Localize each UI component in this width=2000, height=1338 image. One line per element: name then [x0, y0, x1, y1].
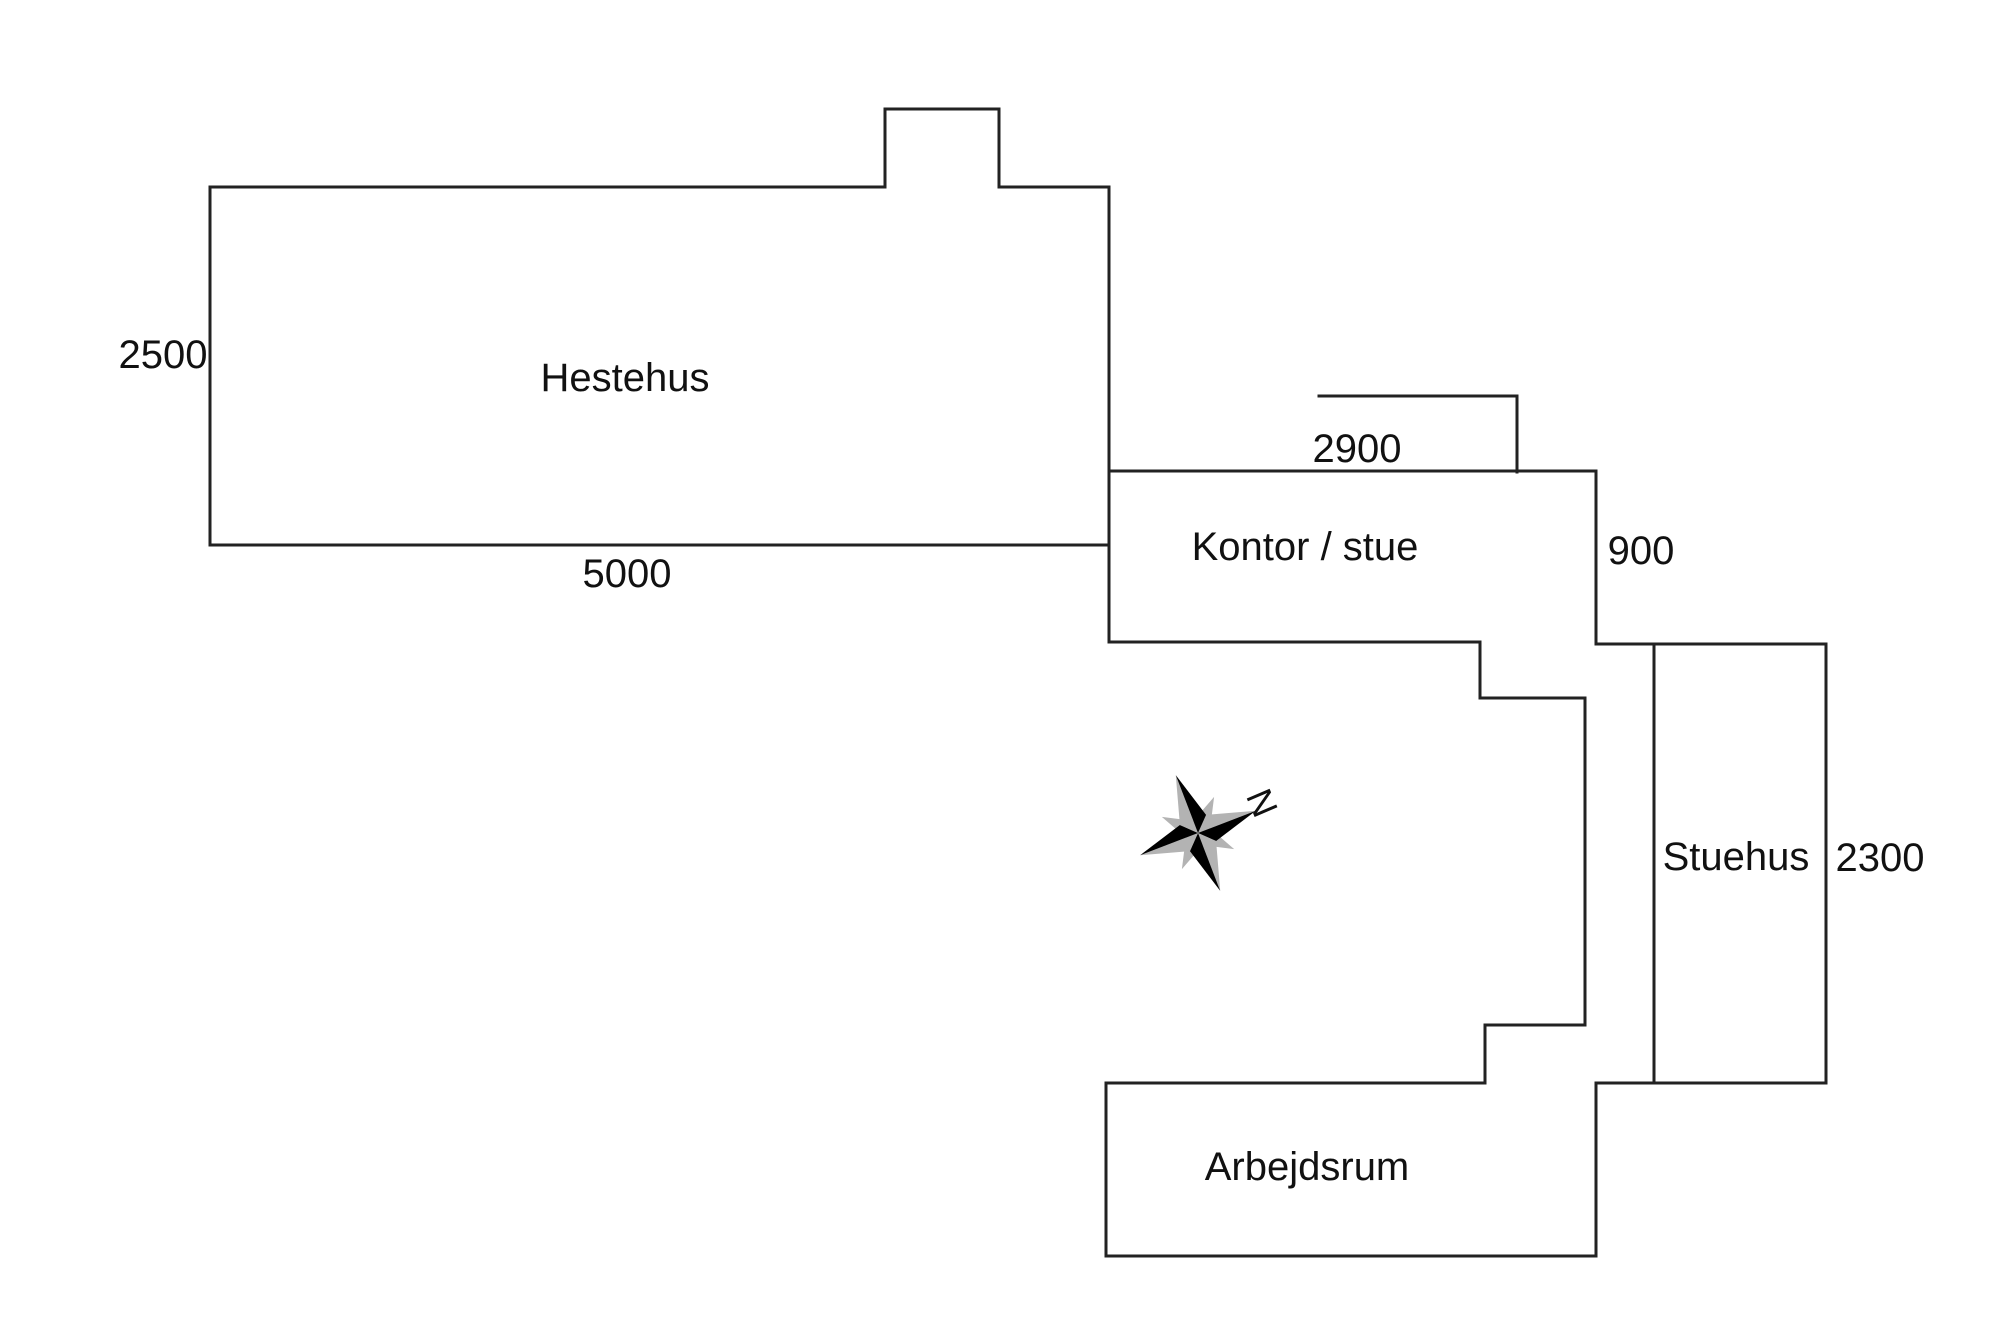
- dimension-label-900: 900: [1608, 529, 1675, 573]
- compass-rose: [1118, 753, 1278, 913]
- room-label-kontor-stue: Kontor / stue: [1192, 525, 1419, 569]
- floorplan-canvas: Hestehus Kontor / stue Stuehus Arbejdsru…: [0, 0, 2000, 1338]
- room-label-stuehus: Stuehus: [1663, 835, 1810, 879]
- dimension-label-2500: 2500: [119, 333, 208, 377]
- dimension-label-5000: 5000: [583, 552, 672, 596]
- dimension-label-2300: 2300: [1836, 836, 1925, 880]
- room-label-hestehus: Hestehus: [541, 356, 710, 400]
- dimension-label-2900: 2900: [1313, 427, 1402, 471]
- wall-lines: [210, 109, 1826, 1256]
- floorplan-svg: [0, 0, 2000, 1338]
- room-label-arbejdsrum: Arbejdsrum: [1205, 1145, 1410, 1189]
